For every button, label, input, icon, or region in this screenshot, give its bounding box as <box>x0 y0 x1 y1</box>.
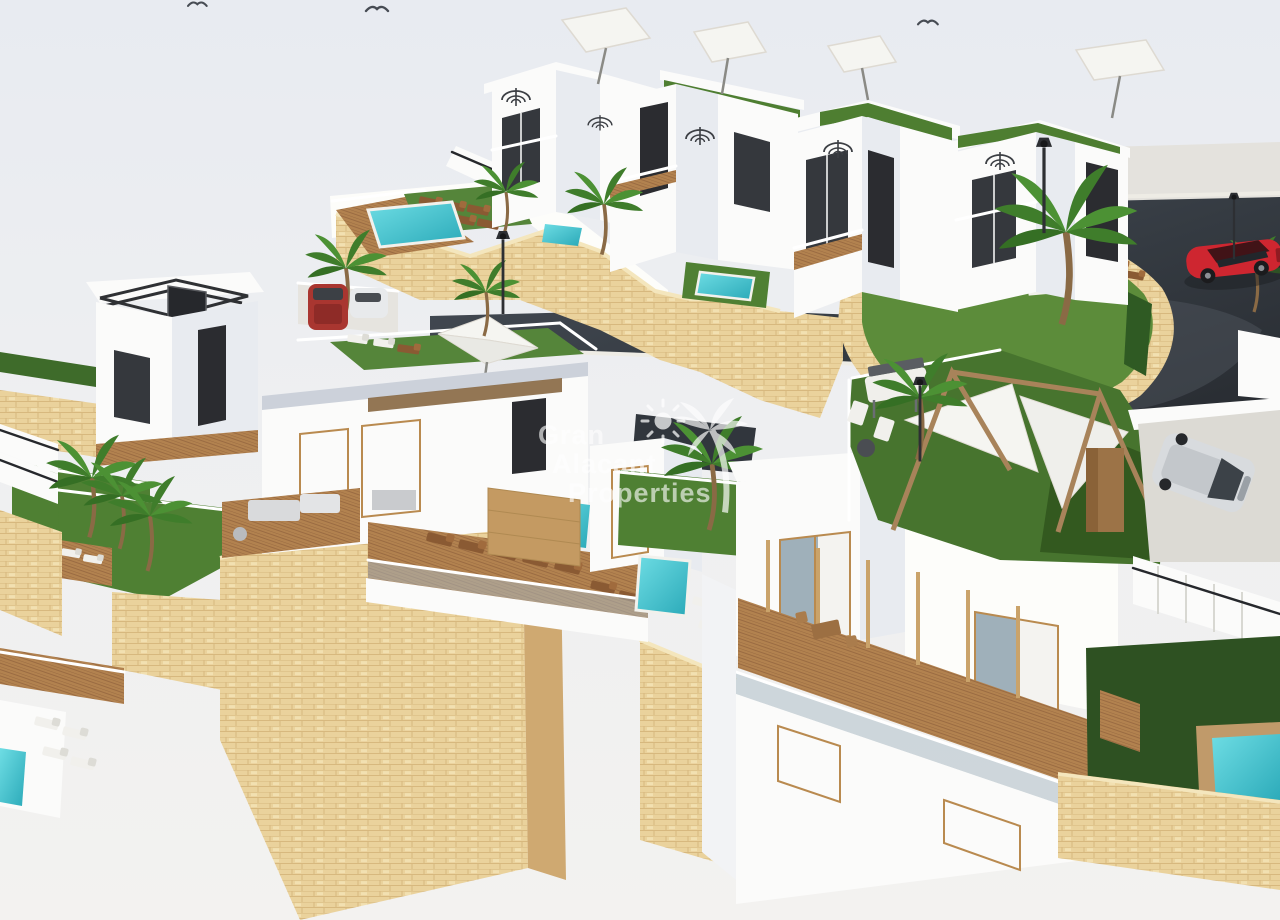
watermark-line1: Gran <box>538 420 605 450</box>
parked-suv-red <box>308 284 348 330</box>
pool-roof-deck <box>368 202 464 247</box>
interior-sofa <box>372 490 416 510</box>
pool-garden <box>636 556 690 616</box>
watermark-line2: Alacant <box>552 449 657 479</box>
left-villa <box>86 272 264 466</box>
townhouse-3 <box>788 100 960 318</box>
watermark-line3: Properties <box>568 478 712 508</box>
parked-car-white <box>350 288 388 318</box>
property-render-image: Gran Alacant Properties <box>0 0 1280 920</box>
tiled-wall <box>488 488 580 566</box>
sun-icon <box>642 400 684 442</box>
